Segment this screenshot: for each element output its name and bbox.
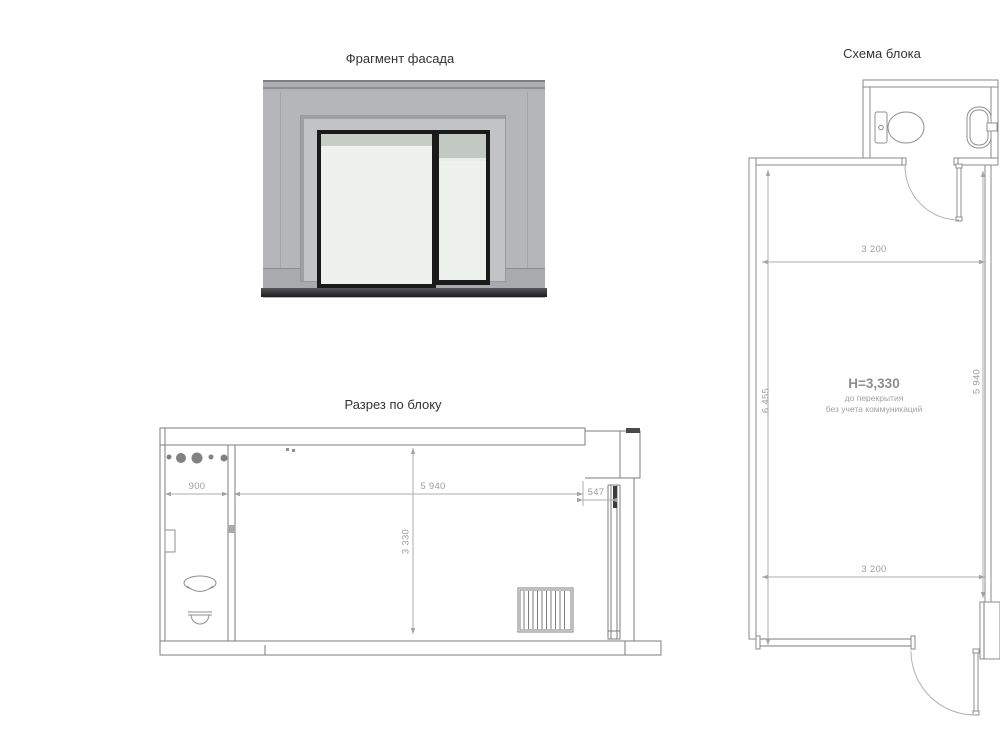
- plan-height-note: H=3,330 до перекрытия без учета коммуник…: [798, 376, 950, 416]
- section-wall-box: [165, 530, 175, 552]
- section-dim-room-height: 3 330: [401, 520, 412, 564]
- plan-dim-bottom-width: 3 200: [848, 564, 900, 575]
- facade-title: Фрагмент фасада: [300, 51, 500, 66]
- plan-right-wall: [985, 165, 991, 602]
- plan-height-note-line3: без учета коммуникаций: [798, 404, 950, 415]
- facade-door-glass: [439, 161, 486, 280]
- section-sink: [184, 576, 216, 592]
- section-dimension-lines: [165, 448, 617, 634]
- facade-wall-seam-left: [280, 92, 281, 268]
- facade-drawing: [263, 80, 545, 298]
- plan-toilet: [875, 112, 924, 143]
- section-ceiling-slab: [160, 428, 585, 445]
- plan-pier: [980, 602, 1000, 659]
- facade-cornice: [263, 80, 545, 92]
- facade-ground-line: [261, 288, 547, 297]
- section-dim-room-width: 5 940: [408, 481, 458, 492]
- section-ceiling-dots: [286, 448, 289, 451]
- plan-dim-right-length: 5 940: [972, 360, 983, 404]
- section-radiator: [518, 588, 573, 632]
- section-window: [608, 485, 620, 639]
- plan-entrance-door: [911, 649, 979, 715]
- architectural-sheet: { "facade": { "title": "Фрагмент фасада"…: [0, 0, 1000, 750]
- section-floor-slab: [160, 641, 661, 655]
- facade-window: [317, 130, 436, 290]
- plan-left-wall: [749, 158, 756, 639]
- section-toilet: [188, 612, 212, 624]
- plan-title: Схема блока: [782, 46, 982, 61]
- section-title: Разрез по блоку: [293, 397, 493, 412]
- plan-window: [756, 636, 915, 649]
- facade-window-transom: [321, 134, 432, 148]
- section-dim-bath-width: 900: [176, 481, 218, 492]
- plan-bathroom-door: [905, 164, 962, 221]
- section-drawing-svg: [158, 426, 666, 658]
- plan-height-note-line2: до перекрытия: [798, 393, 950, 404]
- section-pipes: [167, 448, 296, 464]
- section-partition-wall: [228, 445, 235, 641]
- plan-height-value: H=3,330: [798, 376, 950, 391]
- facade-window-glass: [321, 148, 432, 284]
- facade-door-transom: [439, 134, 486, 161]
- section-parapet: [585, 428, 640, 641]
- section-dim-parapet-width: 547: [580, 487, 612, 498]
- section-left-wall: [160, 428, 165, 641]
- plan-dim-left-length: 6 455: [761, 379, 772, 423]
- facade-door: [435, 130, 490, 285]
- facade-wall-seam-right: [527, 92, 528, 268]
- plan-dim-top-width: 3 200: [848, 244, 900, 255]
